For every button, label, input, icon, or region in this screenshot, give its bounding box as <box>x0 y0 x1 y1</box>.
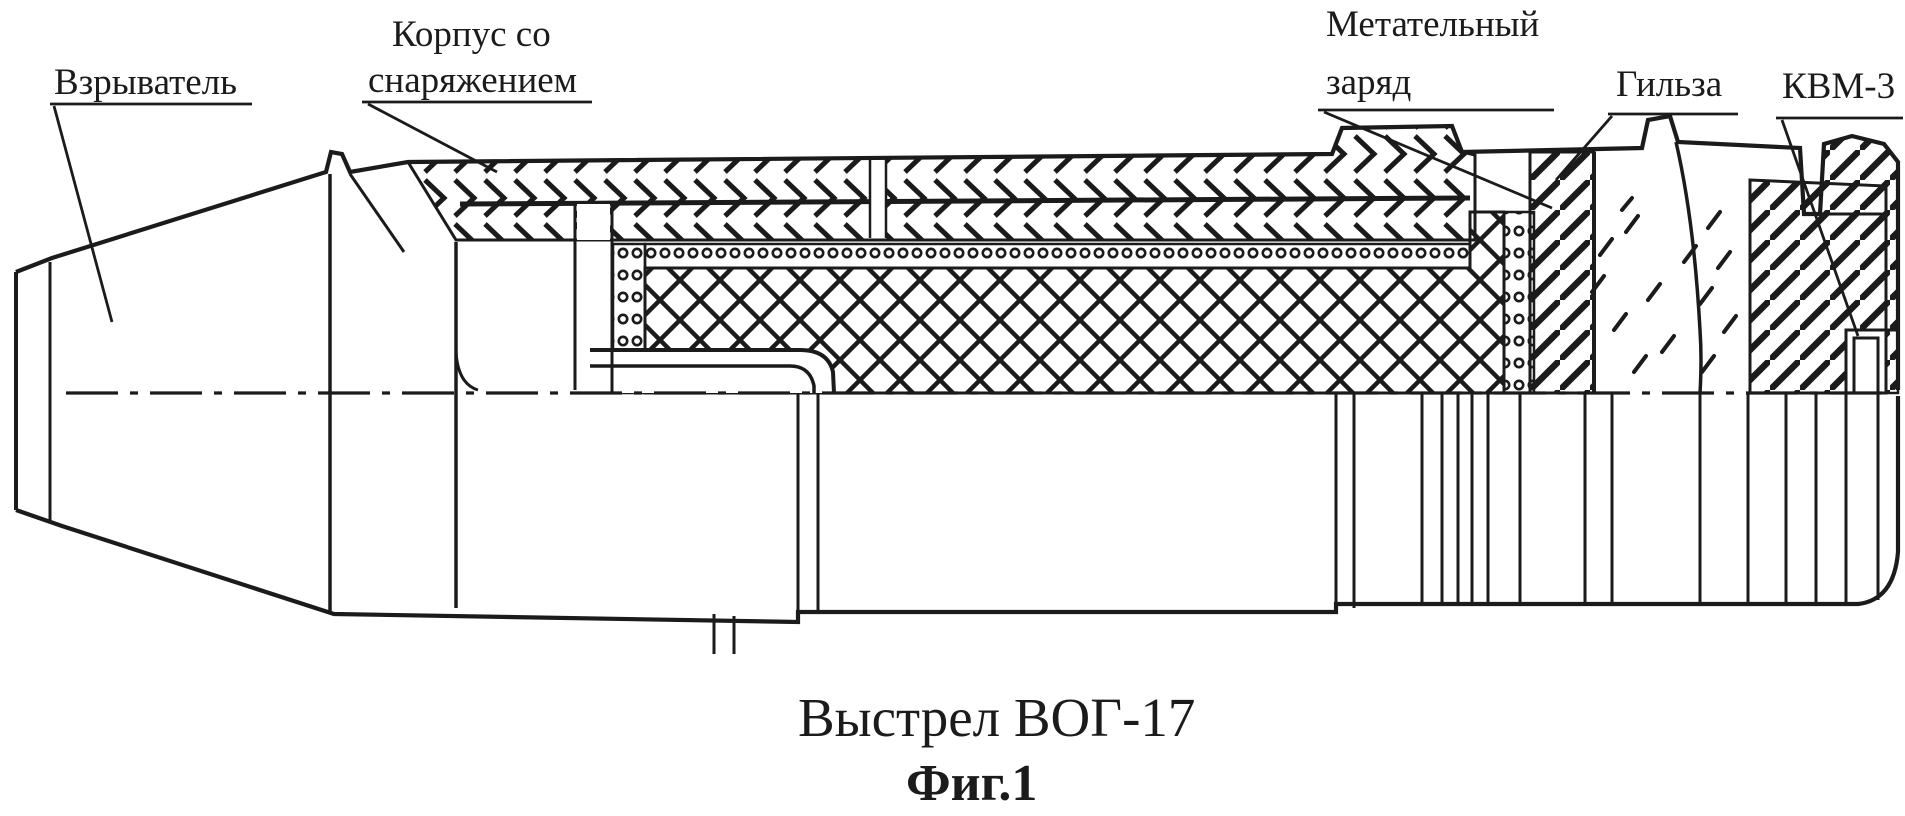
label-propellant-line1: Метательный <box>1326 4 1539 45</box>
label-body-line2: снаряжением <box>368 60 577 101</box>
label-fuze: Взрыватель <box>54 62 237 103</box>
bead-row <box>645 244 1470 268</box>
label-propellant-line2: заряд <box>1326 62 1411 103</box>
figure-caption: Выстрел ВОГ-17 <box>798 687 1195 748</box>
scanned-figure-page: Взрыватель Корпус со снаряжением Метател… <box>0 0 1905 816</box>
primer-pocket-kvm3 <box>1846 330 1886 393</box>
figure-number: Фиг.1 <box>906 755 1037 812</box>
label-primer: КВМ-3 <box>1782 66 1895 107</box>
case-left-wall <box>1530 152 1594 393</box>
vog17-cutaway-diagram: Взрыватель Корпус со снаряжением Метател… <box>0 0 1905 816</box>
label-case: Гильза <box>1616 64 1722 105</box>
collar-band-break <box>870 158 886 238</box>
label-body-line1: Корпус со <box>392 14 551 55</box>
